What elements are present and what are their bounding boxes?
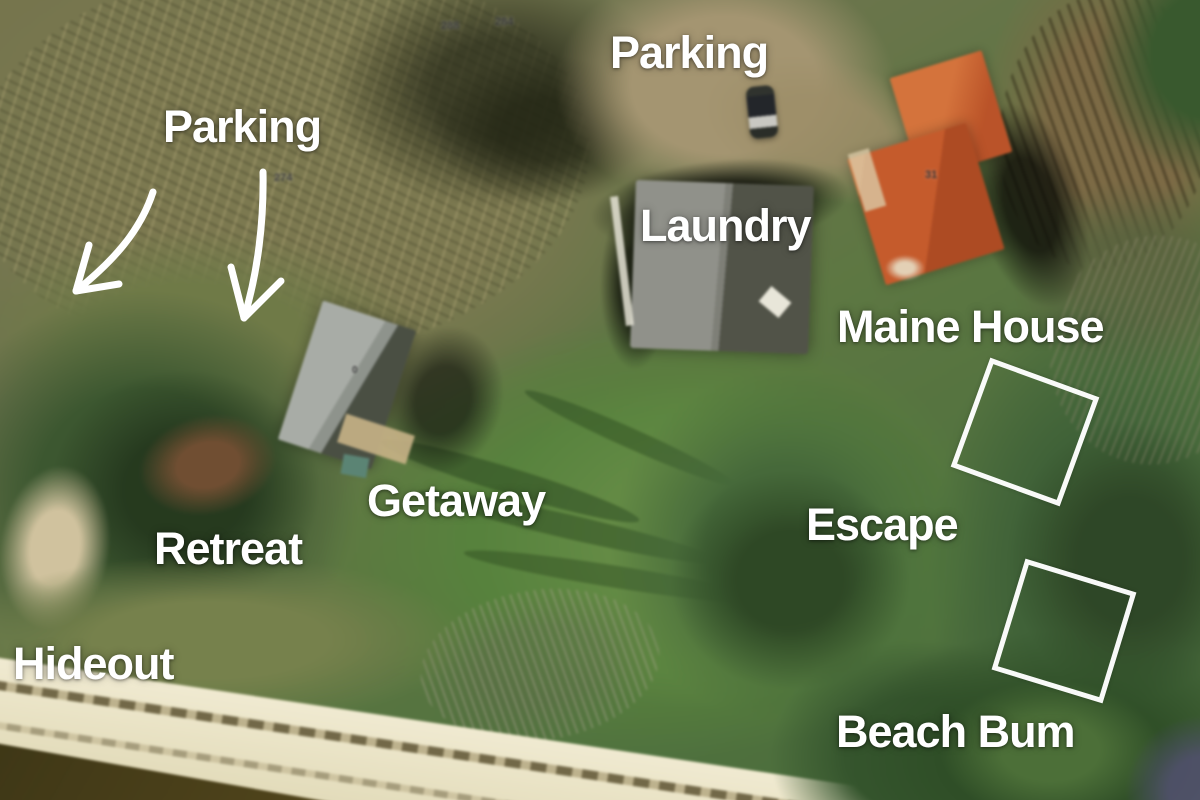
label-retreat: Retreat <box>154 526 302 571</box>
label-laundry: Laundry <box>640 203 811 248</box>
label-beach-bum: Beach Bum <box>836 709 1075 754</box>
label-maine-house: Maine House <box>837 304 1104 349</box>
parking-arrow-right <box>244 172 263 318</box>
aerial-property-map: 288 284 274 0 31 Parking Parking Laundry… <box>0 0 1200 800</box>
parking-arrow-left <box>76 192 153 291</box>
label-getaway: Getaway <box>367 478 545 523</box>
label-parking-top: Parking <box>610 30 768 75</box>
label-parking-left: Parking <box>163 104 321 149</box>
label-escape: Escape <box>806 502 958 547</box>
label-hideout: Hideout <box>13 641 173 686</box>
